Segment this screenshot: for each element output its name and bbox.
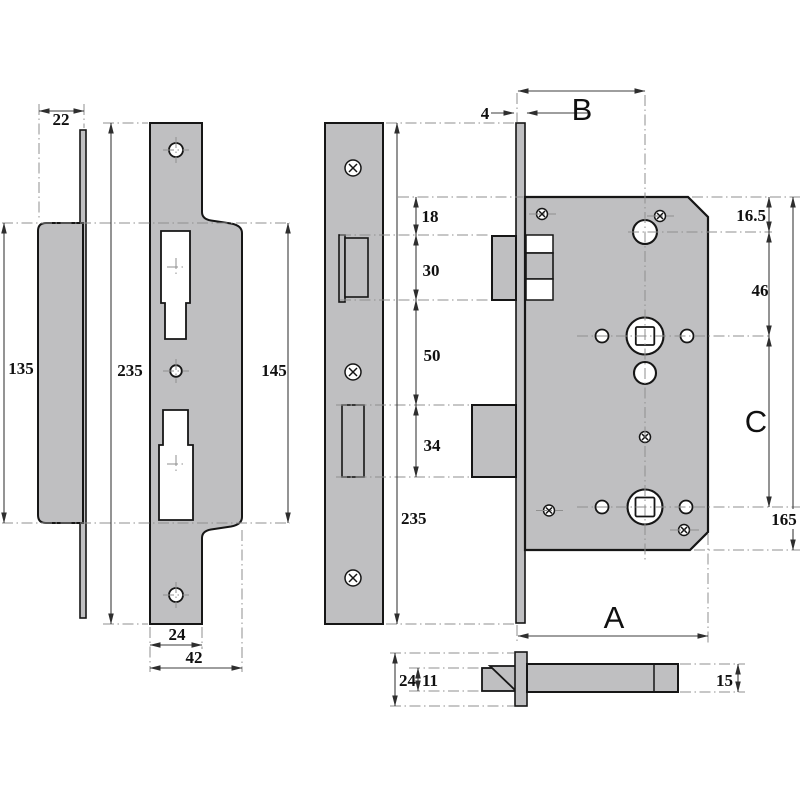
dim-label-plan-case-thickness: 15 [716, 671, 733, 690]
strike-box-body [38, 223, 83, 523]
dim-label-faceplate-thickness: 4 [481, 104, 490, 123]
mortice-lock-drawing: 22 135 235 145 24 42 235 18 30 50 34 4 B… [0, 0, 800, 800]
dim-label-deadbolt-height: 34 [424, 436, 442, 455]
screw-icon [345, 160, 361, 176]
dim-label-case-top-to-latch: 18 [422, 207, 439, 226]
dim-label-faceplate-total-height: 235 [401, 509, 427, 528]
dim-label-plan-faceplate-width: 24 [399, 671, 417, 690]
screw-icon [345, 364, 361, 380]
latch-cutout [161, 231, 190, 339]
deadbolt-opening [342, 405, 364, 477]
strike-plate-body [150, 123, 242, 624]
dim-label-strike-front-wide-height: 145 [261, 361, 287, 380]
dim-label-case-height: 165 [771, 510, 797, 529]
latch-bolt-face [345, 238, 368, 297]
view-lock-faceplate-front [325, 123, 383, 624]
deadbolt-head [472, 405, 516, 477]
latch-housing-lower [526, 279, 553, 300]
dim-label-backset: B [572, 92, 593, 127]
dim-label-latch-height: 30 [423, 261, 440, 280]
dim-label-case-depth: A [604, 600, 625, 635]
case-plan-body [527, 664, 678, 692]
latch-bolt-edge [339, 235, 345, 302]
dim-label-plan-latch-width: 11 [422, 671, 438, 690]
dim-label-top-to-cylinder: 16.5 [736, 206, 766, 225]
dim-label-strike-side-body-height: 135 [8, 359, 34, 378]
latch-housing-mid [526, 253, 553, 279]
dim-label-strike-front-full-width: 42 [186, 648, 203, 667]
dim-label-strike-front-total-height: 235 [117, 361, 143, 380]
dim-label-strike-side-width: 22 [53, 110, 70, 129]
dim-label-latch-to-deadbolt: 50 [424, 346, 441, 365]
screw-icon [345, 570, 361, 586]
technical-drawing-page: 22 135 235 145 24 42 235 18 30 50 34 4 B… [0, 0, 800, 800]
latch-housing-upper [526, 235, 553, 253]
dim-label-spindle-to-follower: C [745, 404, 767, 439]
latch-bolt-head [492, 236, 516, 300]
view-strike-plate-front [150, 123, 242, 624]
dim-label-cylinder-to-spindle: 46 [752, 281, 769, 300]
lock-faceplate-edge [516, 123, 525, 623]
faceplate-plan [515, 652, 527, 706]
dim-label-strike-front-narrow-width: 24 [169, 625, 187, 644]
view-lock-plan [482, 652, 678, 706]
view-lock-body-side [472, 123, 708, 623]
view-strike-plate-side [38, 130, 86, 618]
